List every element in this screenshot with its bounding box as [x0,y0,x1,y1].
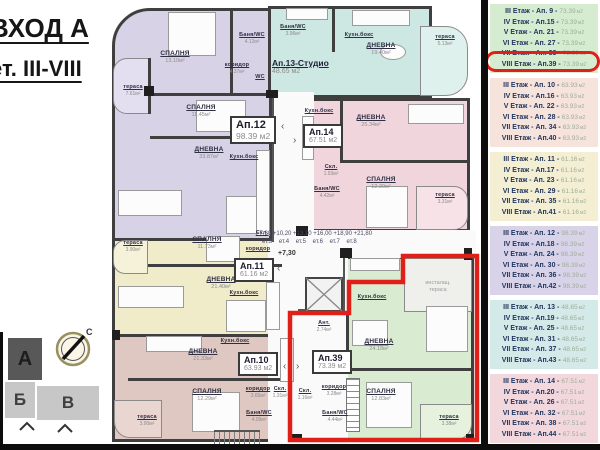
legend-row[interactable]: VII Етаж - Ап. 38 - 67.51 м2 [491,419,597,430]
legend-row-area: 63.93 [562,113,578,124]
apartment-label-ap39: Ап.39 73.39 м2 [312,350,352,374]
legend-row[interactable]: VII Етаж - Ап. 34 - 63.93 м2 [491,123,597,134]
legend-row[interactable]: III Етаж - Ап. 13 - 48.65 м2 [491,303,597,314]
legend-row-area: 98.39 [563,271,579,282]
legend-row[interactable]: V Етаж - Ап. 23 - 61.16 м2 [491,176,597,187]
legend-row[interactable]: III Етаж - Ап. 11 - 61.16 м2 [491,155,597,166]
section-marker-icon: ‹ [283,362,286,372]
legend-row-unit: м2 [580,134,586,145]
room-label: коридор 3.28м² [314,384,354,397]
legend-row-unit: м2 [579,187,585,198]
stairs [214,430,260,445]
wall-block [112,330,120,340]
legend-row-label: III Етаж - Ап. 9 - [505,7,557,18]
legend-row-label: IV Етаж - Ап.18 - [504,240,559,251]
furniture-sofa [118,286,184,308]
room-label: Кухн.бокс [350,294,394,301]
legend-row-area: 63.93 [563,134,579,145]
legend-row-unit: м2 [578,388,584,399]
room-label: ДНЕВНА 25.34м² [340,114,402,128]
legend-row-unit: м2 [578,398,584,409]
room-label: Кухн.бокс [298,108,340,115]
furniture-sofa [408,104,464,124]
wall-block [340,248,352,258]
room-label: Баня/WC 4.42м² [304,186,350,199]
legend-row-label: VII Етаж - Ап. 33 - [502,49,561,60]
wall-block [466,434,474,442]
legend-row-label: VIII Етаж - Ап.40 - [502,134,561,145]
room-label: WC [248,74,272,81]
legend-row-label: VII Етаж - Ап. 34 - [502,123,561,134]
legend-row-unit: м2 [580,282,586,293]
legend-row-unit: м2 [578,324,584,335]
legend-row-label: VII Етаж - Ап. 38 - [502,419,561,430]
legend-row-area: 63.93 [561,81,577,92]
legend-row-area: 63.93 [563,123,579,134]
legend-row-area: 67.51 [561,388,577,399]
legend-row-label: IV Етаж - Ап.17 - [504,166,559,177]
room-label: Баня/WC 3.96м² [270,24,316,37]
room-label: тераса 3.90м² [112,240,154,253]
legend-row[interactable]: V Етаж - Ап. 24 - 98.39 м2 [491,250,597,261]
legend-row-area: 61.16 [561,176,577,187]
room-label: Скл. 1.31м² [266,386,294,399]
legend-row-unit: м2 [580,345,586,356]
wall [348,368,472,371]
legend-row[interactable]: V Етаж - Ап. 21 - 73.39 м2 [491,28,597,39]
legend-row-unit: м2 [578,250,584,261]
legend-row[interactable]: VI Етаж - Ап. 31 - 48.65 м2 [491,335,597,346]
apartment-label-ap13: Ап.13-Студио 48.65 м2 [272,58,352,77]
furniture-kitchen-counter [280,338,294,382]
legend-row-label: V Етаж - Ап. 25 - [504,324,559,335]
legend-row-label: IV Етаж - Ап.20 - [504,388,559,399]
entrance-arrow-icon [20,423,34,430]
apartment-label-ap10: Ап.10 63.93 м2 [238,352,278,376]
legend-row-label: III Етаж - Ап. 13 - [503,303,559,314]
legend-group-67: III Етаж - Ап. 14 - 67.51 м2 IV Етаж - А… [490,374,598,443]
legend-row-label: VIII Етаж - Ап.41 - [502,208,561,219]
legend-row-label: III Етаж - Ап. 10 - [503,81,559,92]
legend-row-area: 98.39 [562,261,578,272]
furniture-kitchen-counter [266,282,280,330]
furniture-sofa [352,10,410,26]
legend-row-label: VIII Етаж - Ап.42 - [502,282,561,293]
legend-row-area: 73.39 [563,49,579,60]
legend-row-unit: м2 [579,39,585,50]
legend-row-unit: м2 [579,377,585,388]
legend-row-unit: м2 [578,155,584,166]
legend-row-unit: м2 [579,335,585,346]
legend-row-label: VII Етаж - Ап. 35 - [502,197,561,208]
legend-row-unit: м2 [578,314,584,325]
legend-row-unit: м2 [578,102,584,113]
legend-row-unit: м2 [580,197,586,208]
service-terrace-note: инсталац. тераса [406,280,470,294]
legend-row[interactable]: III Етаж - Ап. 12 - 98.39 м2 [491,229,597,240]
wall [150,93,272,96]
furniture-kitchen-counter [350,258,400,271]
legend-row-area: 48.65 [562,335,578,346]
legend-row-label: V Етаж - Ап. 23 - [504,176,559,187]
legend-row[interactable]: VII Етаж - Ап. 37 - 48.65 м2 [491,345,597,356]
room-label: Кухн.бокс [224,290,264,297]
section-marker-icon: › [293,136,296,146]
room-label: Ант. 2.74м² [308,320,340,333]
room-label: Скл. 1.16м² [292,388,318,401]
legend-row-unit: м2 [580,430,586,441]
legend-row[interactable]: V Етаж - Ап. 22 - 63.93 м2 [491,102,597,113]
wall [340,160,470,163]
legend-row-area: 48.65 [563,345,579,356]
legend-row-unit: м2 [579,81,585,92]
room-label: СПАЛНЯ 12.29м² [176,388,238,402]
legend-row-area: 48.65 [561,314,577,325]
legend-row[interactable]: V Етаж - Ап. 26 - 67.51 м2 [491,398,597,409]
room-label: СПАЛНЯ 13.10м² [140,50,210,64]
legend-row-area: 98.39 [561,250,577,261]
current-level-mark: +7,30 [278,250,296,257]
floor-marks: ет.3 ет.4 ет.5 ет.6 ет.7 ет.8 [262,239,357,245]
legend-row-unit: м2 [577,7,583,18]
legend-row[interactable]: IV Етаж - Ап.17 - 61.16 м2 [491,166,597,177]
compass-needle [63,336,84,359]
wall [128,378,282,381]
legend-row-unit: м2 [578,166,584,177]
legend-row-area: 67.51 [563,430,579,441]
legend-row-unit: м2 [579,261,585,272]
page-title: ВХОД А ет. III-VIII [0,12,89,82]
legend-row-label: IV Етаж - Ап.16 - [504,92,559,103]
legend-row[interactable]: IV Етаж - Ап.15 - 73.39 м2 [491,18,597,29]
legend-row-area: 61.16 [563,197,579,208]
legend-row-label: VIII Етаж - Ап.43 - [502,356,561,367]
legend-row-label: III Етаж - Ап. 14 - [503,377,559,388]
apartment-label-ap14: Ап.14 67.51 м2 [303,124,343,148]
legend-row-label: V Етаж - Ап. 26 - [504,398,559,409]
room-label: Кухн.бокс [214,338,256,345]
legend-row-area: 67.51 [562,409,578,420]
room-label: Кухн.бокс [338,32,380,39]
legend-row-label: III Етаж - Ап. 12 - [503,229,559,240]
legend-row-unit: м2 [578,176,584,187]
legend-row-area: 48.65 [561,324,577,335]
legend-row-unit: м2 [580,419,586,430]
legend-row-label: VI Етаж - Ап. 27 - [503,39,560,50]
legend-row-unit: м2 [578,92,584,103]
room-label: тераса 3.90м² [126,414,168,427]
section-marker-icon: ‹ [277,264,280,274]
site-block-a[interactable]: А [8,338,42,380]
legend-row-area: 73.39 [562,39,578,50]
legend-row[interactable]: VIII Етаж - Ап.39 - 73.39 м2 [491,60,597,71]
bottom-bar [0,444,600,450]
legend-group-61: III Етаж - Ап. 11 - 61.16 м2 IV Етаж - А… [490,152,598,221]
legend-group-48: III Етаж - Ап. 13 - 48.65 м2 IV Етаж - А… [490,300,598,369]
room-label: ДНЕВНА 24.18м² [348,338,410,352]
legend-row-area: 63.93 [561,92,577,103]
entrance-arrow-icon [58,425,72,432]
apartment-label-ap12: Ап.12 98.39 м2 [230,116,276,144]
room-label: тераса 3.38м² [426,414,472,427]
legend-row-unit: м2 [580,208,586,219]
legend-group-73: III Етаж - Ап. 9 - 73.39 м2 IV Етаж - Ап… [490,4,598,73]
legend-row-unit: м2 [579,229,585,240]
legend-row[interactable]: IV Етаж - Ап.20 - 67.51 м2 [491,388,597,399]
furniture-sofa [118,190,182,216]
legend-row[interactable]: IV Етаж - Ап.18 - 98.39 м2 [491,240,597,251]
legend-row-label: IV Етаж - Ап.15 - [504,18,559,29]
room-label: Баня/WC 4.09м² [236,410,282,423]
legend-group-98: III Етаж - Ап. 12 - 98.39 м2 IV Етаж - А… [490,226,598,295]
compass-icon [57,333,89,365]
legend-row-area: 98.39 [563,282,579,293]
furniture-table [226,300,266,332]
compass-north-label: С [86,327,93,337]
legend-row-area: 61.16 [561,155,577,166]
legend-row[interactable]: VI Етаж - Ап. 30 - 98.39 м2 [491,261,597,272]
room-label: коридор 4.37м² [216,62,258,75]
legend-row-label: III Етаж - Ап. 11 - [503,155,559,166]
legend-row-area: 67.51 [563,419,579,430]
legend-row[interactable]: III Етаж - Ап. 10 - 63.93 м2 [491,81,597,92]
room-label: тераса 7.61м² [112,84,154,97]
room-label: СПАЛНЯ 12.83м² [350,388,412,402]
legend-row[interactable]: VIII Етаж - Ап.44 - 67.51 м2 [491,430,597,441]
legend-row-area: 73.39 [559,7,575,18]
legend-row[interactable]: VI Етаж - Ап. 29 - 61.16 м2 [491,187,597,198]
wall [230,10,233,94]
legend-row-unit: м2 [579,409,585,420]
legend-row-unit: м2 [578,18,584,29]
floor-plan-page: ВХОД А ет. III-VIII [0,0,600,450]
legend-row-label: VI Етаж - Ап. 31 - [503,335,560,346]
room-label: Баня/WC 4.44м² [312,410,358,423]
legend-row[interactable]: IV Етаж - Ап.16 - 63.93 м2 [491,92,597,103]
apartment-legend: III Етаж - Ап. 9 - 73.39 м2 IV Етаж - Ап… [490,4,598,443]
legend-row-area: 67.51 [561,377,577,388]
legend-row-unit: м2 [580,356,586,367]
legend-row-area: 48.65 [561,303,577,314]
legend-row-area: 61.16 [563,208,579,219]
legend-row-unit: м2 [578,28,584,39]
legend-row-area: 73.39 [561,18,577,29]
room-label: ДНЕВНА 19.40м² [350,42,412,56]
level-marks: +7,30 +10,20 +13,10 +16,00 +18,90 +21,80 [256,231,372,237]
legend-row-area: 61.16 [562,187,578,198]
room-label: ДНЕВНА 21.33м² [172,348,234,362]
room-label: СПАЛНЯ 12.30м² [350,176,412,190]
legend-row[interactable]: III Етаж - Ап. 14 - 67.51 м2 [491,377,597,388]
furniture-kitchen-counter [286,8,328,20]
room-label: СПАЛНЯ 11.73м² [176,236,238,250]
legend-row-unit: м2 [580,49,586,60]
legend-row[interactable]: VI Етаж - Ап. 27 - 73.39 м2 [491,39,597,50]
legend-row[interactable]: VI Етаж - Ап. 32 - 67.51 м2 [491,409,597,420]
legend-row-area: 61.16 [561,166,577,177]
wall-block [266,90,278,98]
site-block-v[interactable]: В [37,386,99,420]
legend-row-label: V Етаж - Ап. 21 - [504,28,559,39]
wall-block [290,434,302,442]
room-label: коридор [238,246,278,253]
room-label: Скл. 1.93м² [314,164,348,177]
legend-row-area: 63.93 [561,102,577,113]
elevator-lobby [298,258,345,311]
legend-row-label: V Етаж - Ап. 24 - [504,250,559,261]
legend-row-label: VIII Етаж - Ап.44 - [502,430,561,441]
furniture-sofa [426,306,468,352]
legend-row[interactable]: III Етаж - Ап. 9 - 73.39 м2 [491,7,597,18]
legend-row-unit: м2 [580,60,586,71]
wall-block [464,248,472,260]
furniture-bed [366,186,408,228]
legend-row-unit: м2 [578,240,584,251]
site-block-b[interactable]: Б [5,382,35,418]
legend-row[interactable]: VIII Етаж - Ап.42 - 98.39 м2 [491,282,597,293]
legend-row[interactable]: VII Етаж - Ап. 35 - 61.16 м2 [491,197,597,208]
legend-row-label: VII Етаж - Ап. 36 - [502,271,561,282]
legend-row-area: 48.65 [563,356,579,367]
legend-row-area: 98.39 [561,240,577,251]
legend-row-unit: м2 [580,271,586,282]
legend-row[interactable]: VIII Етаж - Ап.40 - 63.93 м2 [491,134,597,145]
legend-row-unit: м2 [579,303,585,314]
entrance-title: ВХОД А [0,12,89,45]
legend-row-label: VI Етаж - Ап. 30 - [503,261,560,272]
legend-row[interactable]: VIII Етаж - Ап.41 - 61.16 м2 [491,208,597,219]
legend-row-label: VI Етаж - Ап. 29 - [503,187,560,198]
room-label: тераса 5.13м² [424,34,466,47]
legend-row-label: IV Етаж - Ап.19 - [504,314,559,325]
legend-row-unit: м2 [579,113,585,124]
wall [332,8,335,52]
legend-row[interactable]: VII Етаж - Ап. 33 - 73.39 м2 [491,49,597,60]
legend-row-label: VI Етаж - Ап. 28 - [503,113,560,124]
section-marker-icon: › [296,362,299,372]
legend-row-label: VIII Етаж - Ап.39 - [502,60,561,71]
legend-row-area: 67.51 [561,398,577,409]
legend-group-63: III Етаж - Ап. 10 - 63.93 м2 IV Етаж - А… [490,78,598,147]
left-edge-bar [0,332,3,450]
legend-row-label: VII Етаж - Ап. 37 - [502,345,561,356]
separator-bar [481,0,488,450]
legend-row-unit: м2 [580,123,586,134]
apartment-label-ap11: Ап.11 61.16 м2 [234,258,274,282]
furniture-kitchen-counter [256,150,270,236]
legend-row-area: 98.39 [561,229,577,240]
section-marker-icon: ‹ [281,122,284,132]
legend-row-label: V Етаж - Ап. 22 - [504,102,559,113]
legend-row-label: VI Етаж - Ап. 32 - [503,409,560,420]
legend-row[interactable]: VII Етаж - Ап. 36 - 98.39 м2 [491,271,597,282]
legend-row-area: 73.39 [563,60,579,71]
room-label: Кухн.бокс [222,154,266,161]
legend-row[interactable]: VIII Етаж - Ап.43 - 48.65 м2 [491,356,597,367]
legend-row[interactable]: IV Етаж - Ап.19 - 48.65 м2 [491,314,597,325]
legend-row-area: 73.39 [561,28,577,39]
legend-row[interactable]: VI Етаж - Ап. 28 - 63.93 м2 [491,113,597,124]
floors-subtitle: ет. III-VIII [0,55,89,83]
legend-row[interactable]: V Етаж - Ап. 25 - 48.65 м2 [491,324,597,335]
room-label: тераса 3.31м² [422,192,468,205]
room-label: СПАЛНЯ 11.45м² [168,104,234,118]
room-label: Баня/WC 4.12м² [232,32,272,45]
